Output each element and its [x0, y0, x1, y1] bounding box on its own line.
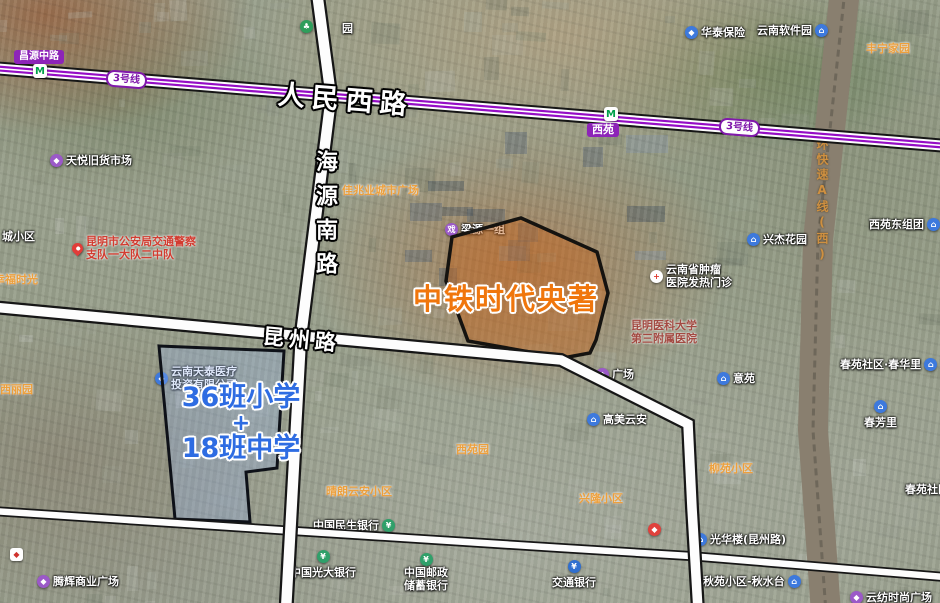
project-plot-label: 中铁时代央著 [413, 276, 599, 318]
road-name-haiyuan-south: 海源南路 [308, 150, 340, 286]
road-name-renmin-west: 人民西路 [277, 73, 416, 123]
school-label-line1: 36班小学 [166, 384, 316, 412]
metro-logo-icon[interactable]: M [604, 107, 618, 121]
metro-line3-badge-east[interactable]: 3号线 [718, 117, 760, 137]
road-name-changyuan-middle[interactable]: 昌源中路 [14, 50, 64, 64]
metro-station-xiyuan-label[interactable]: 西苑 [587, 123, 619, 137]
annotation-labels: 人民西路 海源南路 昆州路 中铁时代央著 36班小学 + 18班中学 昌源中路 … [0, 0, 940, 603]
metro-logo-icon[interactable]: M [33, 64, 47, 78]
satellite-map: 环快速A线(西) ♣高园◆天悦旧货市场◆华泰保险云南软件园⌂丰宁家园西苑东组团⌂… [0, 0, 940, 603]
school-label-line2: 18班中学 [166, 435, 316, 463]
metro-line3-badge-west[interactable]: 3号线 [105, 69, 147, 89]
school-label-plus: + [166, 412, 316, 435]
road-name-kunzhou: 昆州路 [262, 320, 343, 357]
school-plot-label: 36班小学 + 18班中学 [166, 384, 316, 464]
